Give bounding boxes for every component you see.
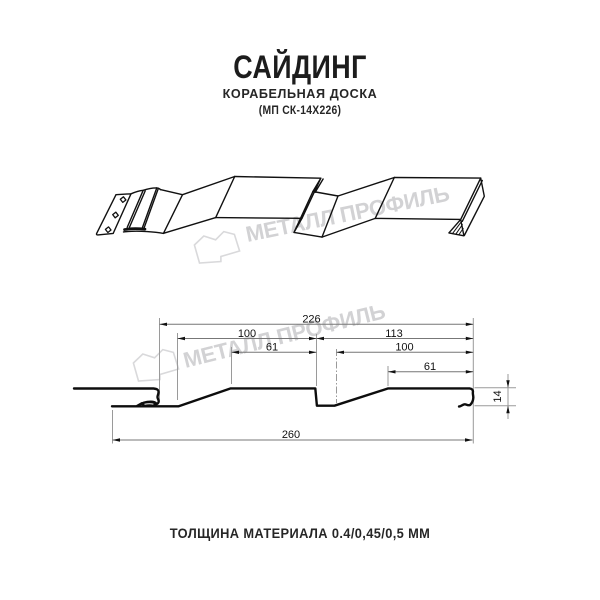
svg-text:61: 61 — [266, 342, 278, 354]
svg-text:61: 61 — [424, 361, 436, 373]
svg-text:100: 100 — [395, 342, 413, 354]
svg-text:260: 260 — [282, 429, 300, 441]
svg-text:113: 113 — [385, 328, 403, 340]
svg-text:МЕТАЛЛ ПРОФИЛЬ: МЕТАЛЛ ПРОФИЛЬ — [243, 181, 451, 247]
svg-text:100: 100 — [238, 328, 256, 340]
svg-text:14: 14 — [492, 390, 504, 402]
svg-text:226: 226 — [302, 314, 320, 326]
svg-text:МЕТАЛЛ ПРОФИЛЬ: МЕТАЛЛ ПРОФИЛЬ — [181, 298, 389, 372]
